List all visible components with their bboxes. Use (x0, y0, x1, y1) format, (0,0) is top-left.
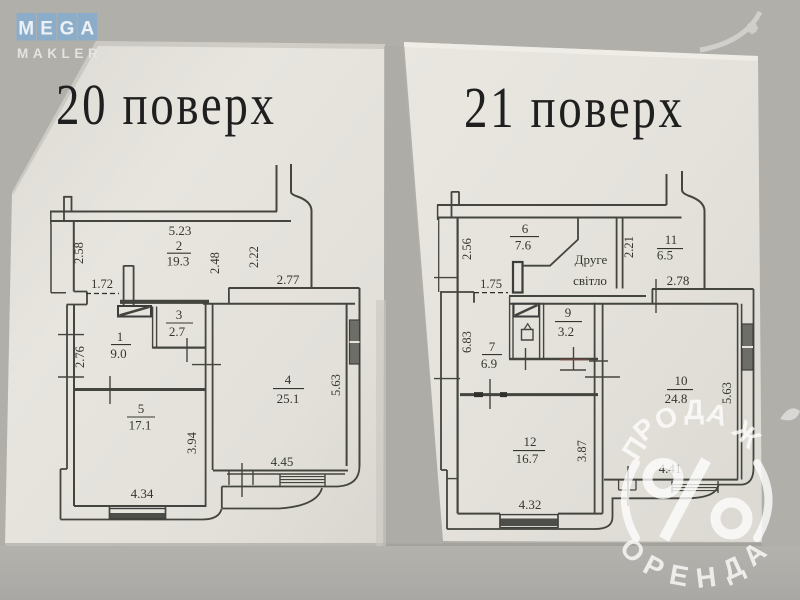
svg-text:10: 10 (675, 373, 688, 388)
svg-text:20 поверх: 20 поверх (56, 73, 277, 137)
svg-text:1.72: 1.72 (91, 277, 113, 291)
svg-text:2.7: 2.7 (169, 324, 186, 339)
svg-text:5.23: 5.23 (169, 223, 192, 238)
svg-text:4.34: 4.34 (131, 486, 154, 501)
svg-text:17.1: 17.1 (129, 418, 152, 433)
svg-text:2.48: 2.48 (208, 252, 222, 274)
svg-text:1: 1 (117, 329, 124, 344)
svg-text:7.6: 7.6 (515, 238, 532, 253)
svg-text:2.21: 2.21 (622, 236, 636, 258)
svg-text:4.45: 4.45 (271, 454, 294, 469)
svg-text:Н: Н (694, 561, 718, 594)
svg-text:4: 4 (285, 372, 292, 387)
svg-text:16.7: 16.7 (516, 451, 539, 466)
svg-text:5.63: 5.63 (329, 374, 343, 396)
svg-text:6.9: 6.9 (481, 356, 497, 371)
svg-text:E: E (40, 19, 53, 40)
svg-text:2.77: 2.77 (277, 272, 300, 287)
svg-text:6: 6 (522, 221, 529, 236)
svg-text:21 поверх: 21 поверх (464, 76, 685, 140)
svg-text:3.94: 3.94 (185, 431, 199, 454)
svg-text:7: 7 (489, 339, 496, 354)
svg-text:2.78: 2.78 (667, 273, 690, 288)
svg-text:4.32: 4.32 (519, 497, 542, 512)
svg-text:25.1: 25.1 (277, 391, 300, 406)
svg-text:2.76: 2.76 (73, 346, 87, 368)
svg-text:3.2: 3.2 (558, 324, 574, 339)
svg-text:2: 2 (176, 238, 183, 253)
svg-text:2.58: 2.58 (72, 242, 86, 264)
svg-text:MAKLER: MAKLER (17, 46, 102, 61)
svg-text:A: A (81, 19, 95, 40)
svg-text:світло: світло (573, 273, 607, 288)
svg-text:3.87: 3.87 (575, 440, 589, 462)
svg-text:2.22: 2.22 (247, 246, 261, 268)
svg-text:Д: Д (684, 394, 705, 425)
svg-text:M: M (18, 19, 34, 40)
svg-text:G: G (60, 19, 75, 40)
svg-text:Друге: Друге (575, 252, 608, 267)
svg-text:3: 3 (176, 307, 183, 322)
svg-text:19.3: 19.3 (167, 254, 190, 269)
svg-text:9: 9 (565, 305, 572, 320)
svg-text:12: 12 (524, 434, 537, 449)
svg-text:6.83: 6.83 (460, 331, 474, 353)
svg-text:6.5: 6.5 (657, 248, 673, 263)
svg-text:5: 5 (138, 401, 145, 416)
svg-text:1.75: 1.75 (480, 277, 502, 291)
svg-text:11: 11 (665, 232, 678, 247)
svg-text:9.0: 9.0 (110, 346, 126, 361)
svg-text:2.56: 2.56 (460, 238, 474, 260)
